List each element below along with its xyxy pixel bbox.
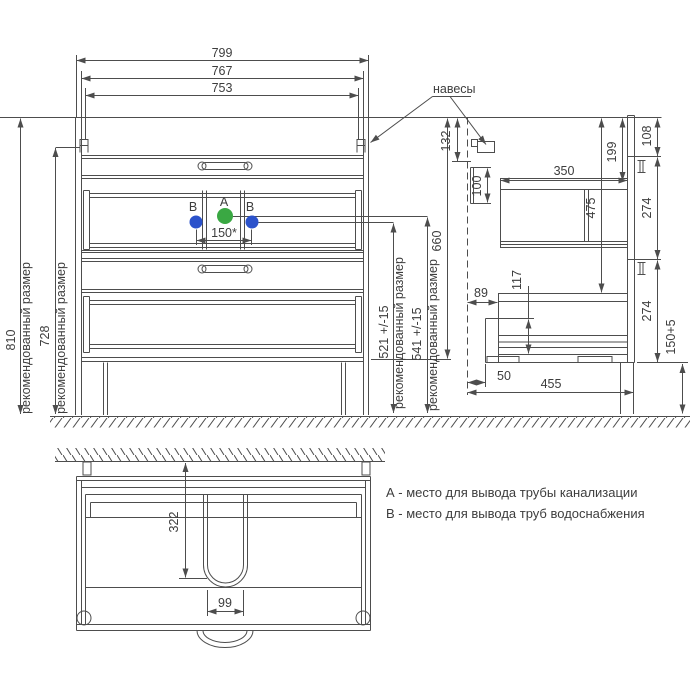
front-view <box>76 118 428 416</box>
top-hanger-left <box>83 462 91 475</box>
dim-label-274-top: 274 <box>640 198 654 219</box>
labels: 799 767 753 810 рекомендованный размер 7… <box>4 46 678 610</box>
dim-label-322: 322 <box>167 512 181 533</box>
side-hanger-bracket <box>472 140 495 153</box>
dim-label-660: 660 <box>430 231 444 252</box>
dim-label-521: 521 +/-15 <box>377 305 391 358</box>
top-leg-left <box>77 611 91 625</box>
pipe-leader-lines <box>233 217 428 223</box>
dim-label-117: 117 <box>510 270 524 290</box>
side-foot-rear <box>487 357 519 363</box>
dim-label-799: 799 <box>212 46 233 60</box>
front-recess-lower-frame <box>84 297 362 353</box>
legend-line-a: А - место для вывода трубы канализации <box>386 485 637 500</box>
note-541: рекомендованный размер <box>426 259 440 411</box>
side-drawer-front-lip <box>486 319 535 363</box>
dim-label-150-5: 150+5 <box>664 319 678 354</box>
pipe-b-left-circle <box>190 216 203 229</box>
top-handle-arc <box>197 631 253 648</box>
pipe-b-right-label: В <box>246 200 254 214</box>
dim-label-455: 455 <box>541 377 562 391</box>
top-hanger-right <box>362 462 370 475</box>
pipe-a-drain-circle <box>217 208 233 224</box>
note-810: рекомендованный размер <box>19 262 33 414</box>
drawer-handle-top <box>198 162 252 170</box>
side-lower-drawer <box>486 294 628 363</box>
side-front-leg <box>621 363 634 414</box>
dim-label-810: 810 <box>4 330 18 351</box>
pipe-b-left-label: В <box>189 200 197 214</box>
dim-label-108: 108 <box>640 126 654 147</box>
note-728: рекомендованный размер <box>54 262 68 414</box>
dim-label-89: 89 <box>474 286 488 300</box>
dim-label-99: 99 <box>218 596 232 610</box>
pipe-a-label: А <box>220 195 229 209</box>
dim-label-50: 50 <box>497 369 511 383</box>
dim-label-541: 541 +/-15 <box>410 307 424 360</box>
dim-label-350: 350 <box>554 164 575 178</box>
vanity-installation-drawing: 799 767 753 810 рекомендованный размер 7… <box>0 0 700 700</box>
dim-label-753: 753 <box>212 81 233 95</box>
drawing-canvas: 799 767 753 810 рекомендованный размер 7… <box>0 0 700 700</box>
note-521: рекомендованный размер <box>392 257 406 409</box>
front-hanger-brackets <box>80 140 365 153</box>
side-front-panel <box>628 116 635 363</box>
pipe-b-right-circle <box>246 216 259 229</box>
floor-hatch <box>50 417 690 428</box>
dim-label-150: 150* <box>211 226 237 240</box>
dim-label-475: 475 <box>584 198 598 219</box>
side-upper-drawer <box>501 179 628 248</box>
dim-label-767: 767 <box>212 64 233 78</box>
top-plumbing-cutout <box>204 495 248 588</box>
dim-label-100: 100 <box>470 176 484 197</box>
dim-label-728: 728 <box>38 326 52 347</box>
drawer-handle-bottom <box>198 265 252 273</box>
hangers-label: навесы <box>433 82 476 96</box>
legend-line-b: В - место для вывода труб водоснабжения <box>386 506 645 521</box>
hangers-leader-left <box>371 97 433 143</box>
hangers-callout <box>371 97 487 145</box>
top-view <box>55 448 385 648</box>
dim-label-274-bottom: 274 <box>640 301 654 322</box>
top-wall-hatch <box>55 448 385 462</box>
dim-label-132: 132 <box>439 131 453 152</box>
top-leg-right <box>356 611 370 625</box>
side-dimensions <box>452 119 683 414</box>
hangers-leader-right <box>450 97 486 145</box>
dim-label-199: 199 <box>605 142 619 163</box>
side-foot-front <box>578 357 612 363</box>
